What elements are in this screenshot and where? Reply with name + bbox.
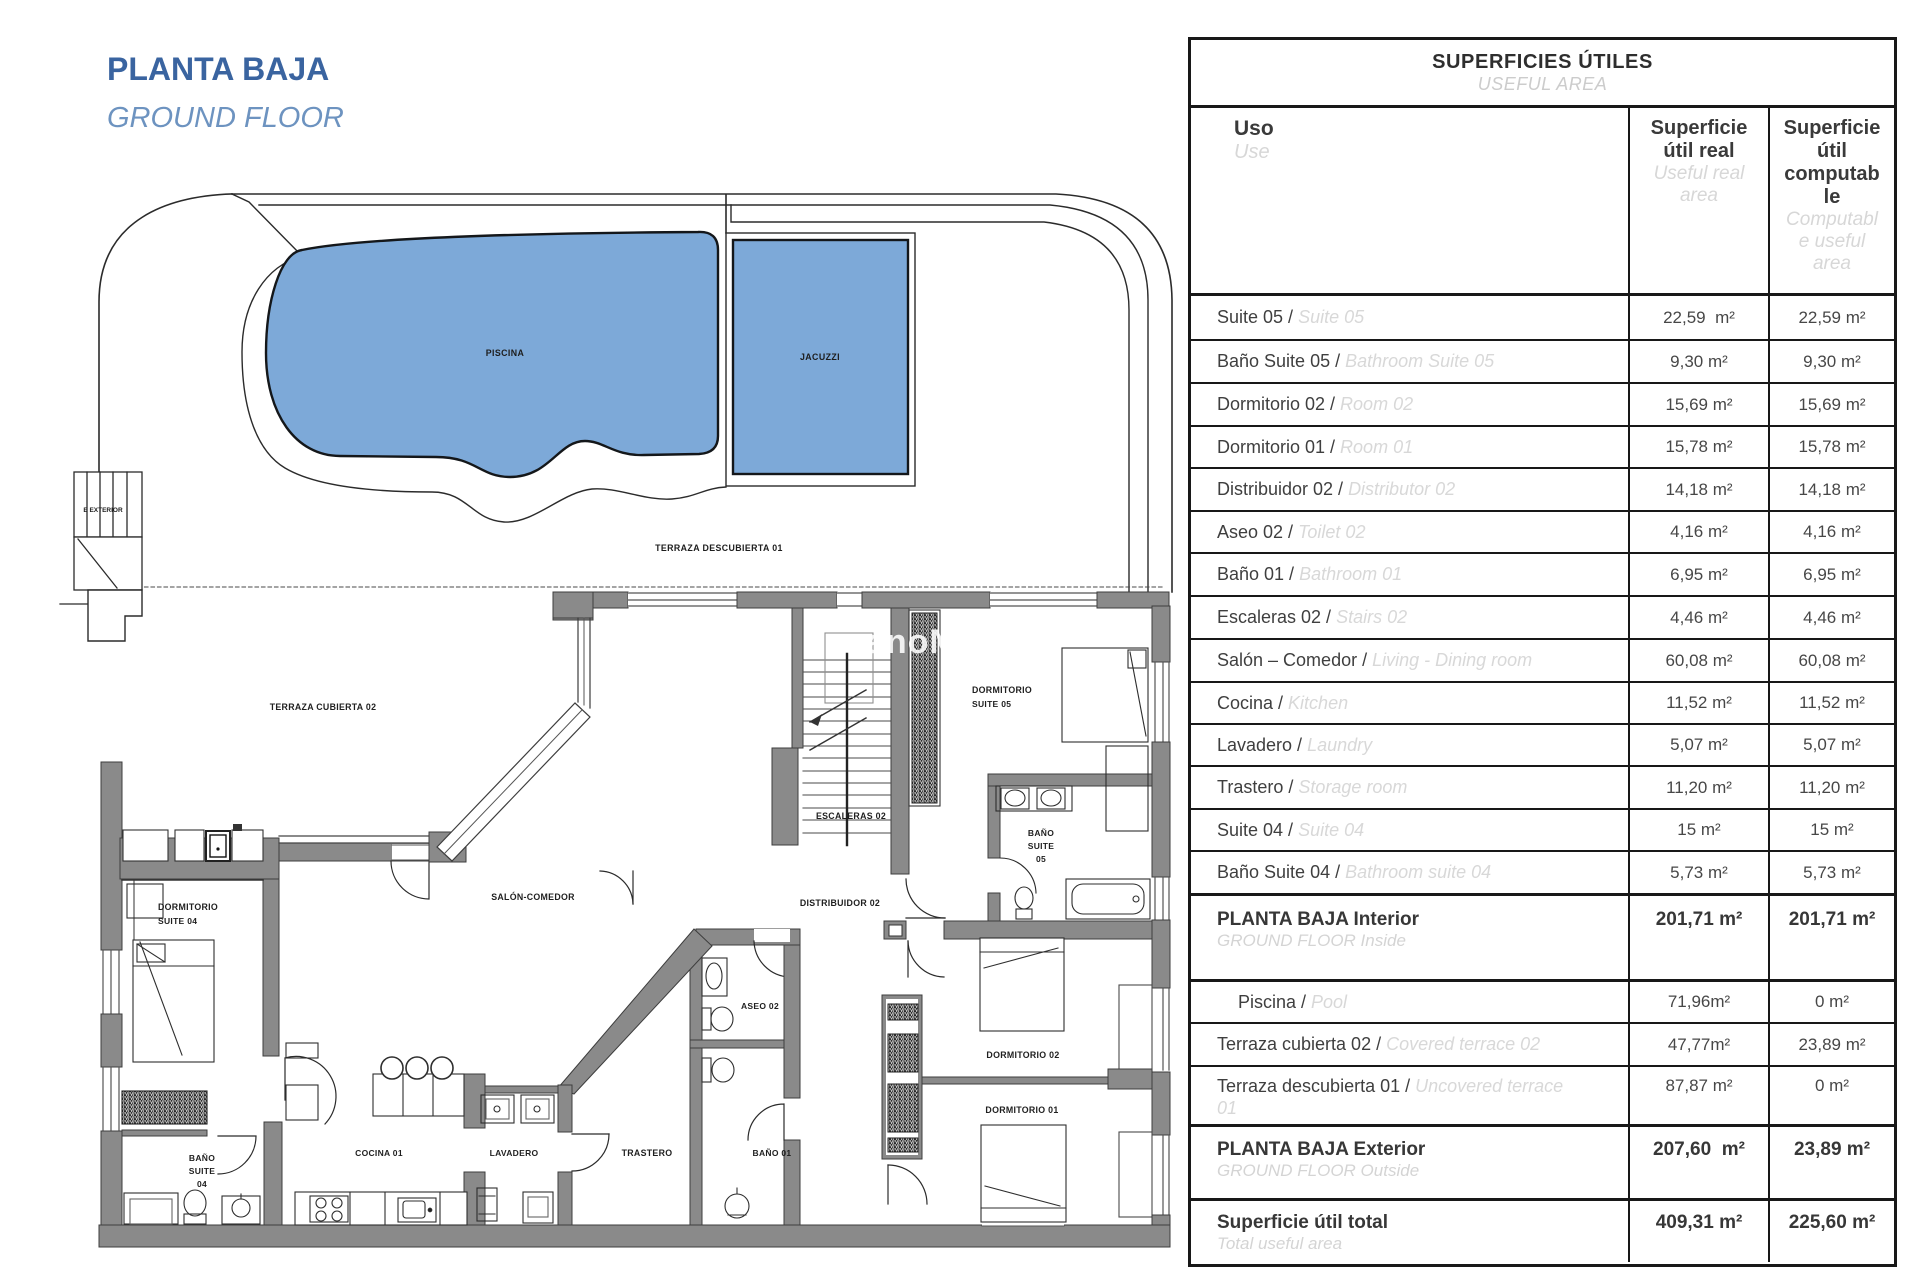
svg-text:anoM: anoM [866,623,959,661]
svg-text:DORMITORIO 02: DORMITORIO 02 [986,1050,1059,1060]
svg-text:TERRAZA DESCUBIERTA 01: TERRAZA DESCUBIERTA 01 [655,543,783,553]
svg-text:DISTRIBUIDOR 02: DISTRIBUIDOR 02 [800,898,880,908]
svg-text:04: 04 [197,1179,207,1189]
svg-text:DORMITORIO: DORMITORIO [972,685,1032,695]
svg-text:TERRAZA CUBIERTA 02: TERRAZA CUBIERTA 02 [270,702,377,712]
svg-text:SUITE: SUITE [1028,841,1055,851]
svg-text:SUITE 05: SUITE 05 [972,699,1011,709]
svg-text:SUITE 04: SUITE 04 [158,916,197,926]
svg-text:ESCALERAS 02: ESCALERAS 02 [816,811,886,821]
svg-text:ASEO 02: ASEO 02 [741,1001,779,1011]
svg-text:BAÑO 01: BAÑO 01 [753,1148,792,1158]
svg-text:JACUZZI: JACUZZI [800,352,840,362]
svg-text:COCINA 01: COCINA 01 [355,1148,403,1158]
svg-text:DORMITORIO 01: DORMITORIO 01 [985,1105,1058,1115]
svg-text:SALÓN-COMEDOR: SALÓN-COMEDOR [491,891,575,902]
svg-text:BAÑO: BAÑO [189,1153,215,1163]
svg-text:E EXTERIOR: E EXTERIOR [83,507,123,514]
svg-text:LAVADERO: LAVADERO [490,1148,539,1158]
svg-text:BAÑO: BAÑO [1028,828,1054,838]
svg-text:DORMITORIO: DORMITORIO [158,902,218,912]
svg-text:05: 05 [1036,854,1046,864]
svg-text:TRASTERO: TRASTERO [622,1148,673,1158]
svg-text:PISCINA: PISCINA [486,348,525,358]
svg-text:SUITE: SUITE [189,1166,216,1176]
